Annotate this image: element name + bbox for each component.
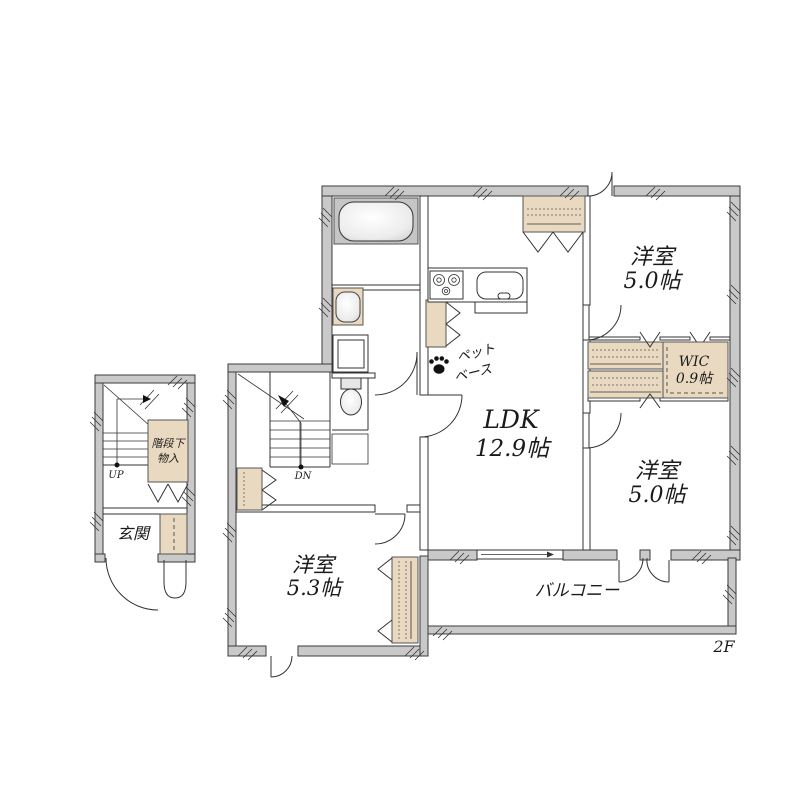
stairs-up-label: UP (108, 470, 123, 481)
wic-size: 0.9帖 (676, 371, 714, 387)
door-bedroom-ne-exterior (588, 172, 612, 196)
shoe-cabinet (160, 514, 187, 554)
toilet-bowl (341, 389, 362, 415)
closet-north (523, 196, 585, 252)
closet-hall (237, 468, 276, 510)
sliding-window (477, 550, 563, 559)
bedroom-se-label: 洋室 (635, 459, 682, 484)
door-bedroom-sw (375, 514, 405, 544)
bathtub (339, 202, 413, 241)
ldk-size: 12.9帖 (475, 436, 552, 462)
entrance-section-1f (95, 375, 195, 610)
stairs-up-arrow (143, 395, 151, 403)
floor-plan-canvas: 洋室 5.0帖 WIC 0.9帖 洋室 5.0帖 LDK 12.9帖 洋室 5.… (0, 0, 800, 800)
door-balcony-left (619, 558, 643, 582)
under-stairs-storage-label-2: 物入 (157, 452, 179, 465)
stairs-down-2f (238, 372, 330, 470)
floor-plan-svg: 洋室 5.0帖 WIC 0.9帖 洋室 5.0帖 LDK 12.9帖 洋室 5.… (0, 0, 800, 800)
washing-machine (333, 335, 368, 372)
bathroom (334, 198, 418, 244)
toilet-tank (341, 378, 361, 389)
bedroom-ne-label: 洋室 (630, 245, 677, 270)
stairs-down-label: DN (294, 471, 313, 482)
closet-bedroom-sw (378, 557, 418, 643)
entrance-label: 玄関 (117, 524, 151, 543)
door-balcony-right (647, 558, 669, 582)
wic-closet (663, 342, 728, 398)
paw-icon (429, 356, 449, 374)
door-ldk (420, 395, 462, 437)
closet-pet-base (426, 300, 460, 347)
under-stairs-storage-label-1: 階段下 (152, 437, 187, 450)
wic-label: WIC (679, 354, 710, 370)
washbasin (333, 288, 363, 325)
bedroom-sw-size: 5.3帖 (287, 576, 344, 600)
door-washroom (375, 352, 417, 395)
bedroom-sw-label: 洋室 (292, 553, 337, 577)
bedroom-ne-size: 5.0帖 (624, 269, 684, 294)
balcony-label: バルコニー (535, 581, 621, 601)
door-bedroom-sw-exterior (271, 656, 292, 677)
door-bedroom-ne (583, 305, 621, 340)
floor-label: 2F (712, 637, 735, 656)
ldk-label: LDK (482, 405, 540, 434)
door-bedroom-se (583, 413, 621, 448)
bedroom-se-size: 5.0帖 (629, 483, 689, 508)
pet-base-label-1: ペット (455, 342, 496, 366)
entry-door (106, 558, 186, 610)
toilet (330, 372, 368, 467)
faucet (498, 293, 510, 299)
